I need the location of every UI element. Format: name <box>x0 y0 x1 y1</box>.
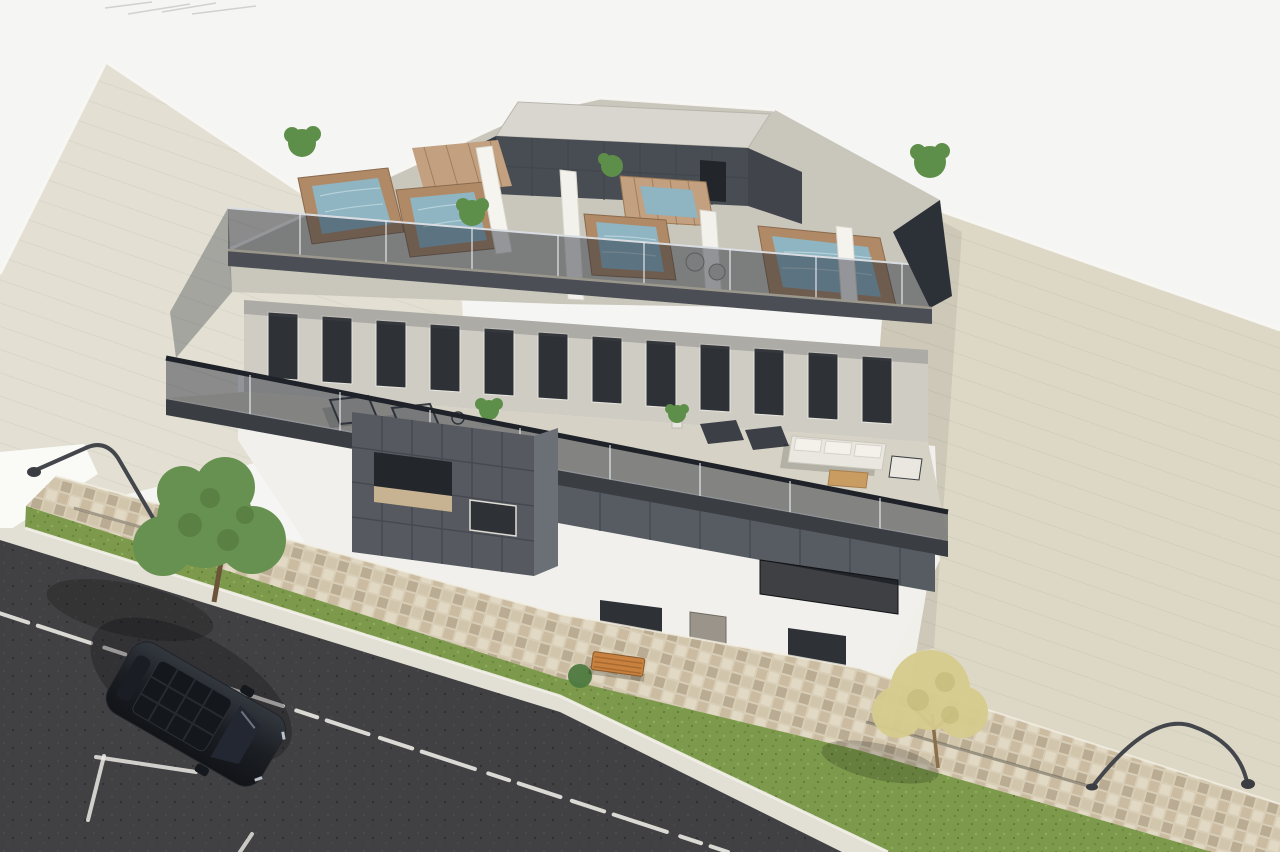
lamp-base <box>1086 784 1098 791</box>
rendering-canvas <box>0 0 1280 852</box>
coffee-table <box>828 470 868 488</box>
dark-recliner <box>745 426 789 450</box>
dark-panel-block <box>352 412 558 576</box>
armchair <box>889 456 922 480</box>
dark-recliner <box>700 420 744 444</box>
shrub <box>568 664 592 688</box>
lamp-head <box>1241 779 1255 789</box>
block-window <box>470 500 516 536</box>
lamp-head <box>27 467 41 477</box>
scene <box>0 0 1280 852</box>
